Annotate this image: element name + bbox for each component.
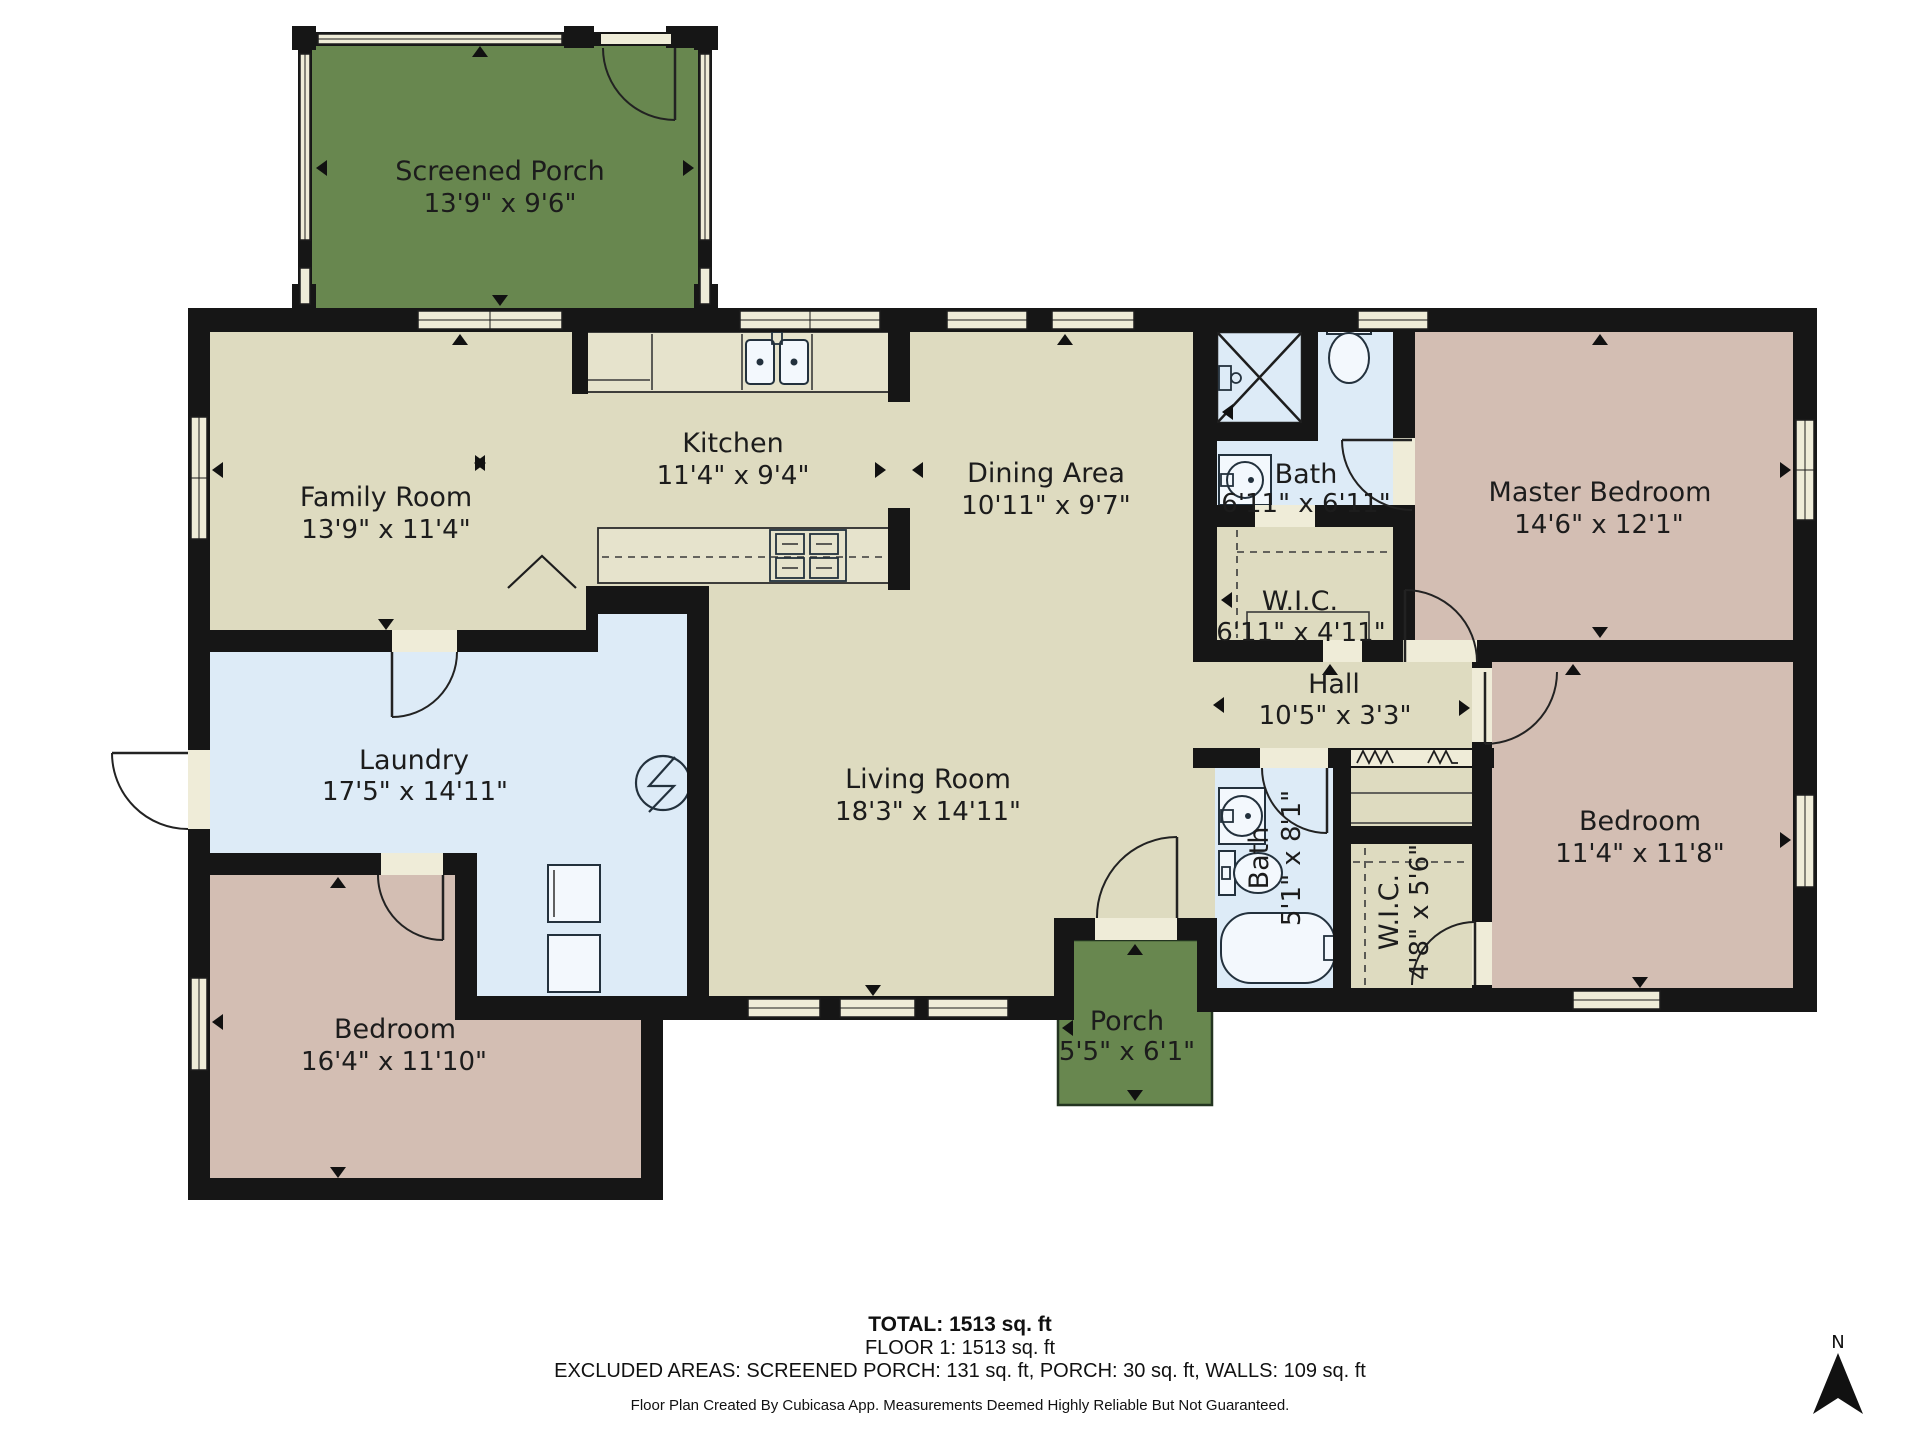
master-bedroom-label: Master Bedroom — [1489, 477, 1712, 508]
floor-area-text: FLOOR 1: 1513 sq. ft — [865, 1337, 1056, 1359]
window — [740, 311, 880, 329]
footer: TOTAL: 1513 sq. ft FLOOR 1: 1513 sq. ft … — [554, 1313, 1366, 1414]
hall-label: Hall — [1308, 669, 1360, 700]
screened-porch-label: Screened Porch — [395, 156, 604, 187]
window — [840, 999, 915, 1017]
window — [418, 311, 562, 329]
window — [1573, 991, 1660, 1009]
window — [191, 417, 207, 539]
bath-lower-dims: 5'1" x 8'1" — [1277, 790, 1307, 926]
window — [748, 999, 820, 1017]
north-arrow-icon — [1813, 1353, 1863, 1414]
wic-upper-label: W.I.C. — [1262, 586, 1338, 617]
wic-lower-label: W.I.C. — [1374, 874, 1405, 950]
floorplan-drawing: Screened Porch 13'9" x 9'6" Family Room … — [0, 0, 1920, 1440]
attribution-text: Floor Plan Created By Cubicasa App. Meas… — [631, 1397, 1290, 1414]
window — [191, 978, 207, 1070]
kitchen-peninsula — [598, 528, 890, 583]
wic-lower-dims: 4'8" x 5'6" — [1405, 844, 1435, 980]
north-label: N — [1831, 1332, 1844, 1353]
family-room-label: Family Room — [300, 482, 472, 513]
wic-upper-dims: 6'11" x 4'11" — [1216, 618, 1385, 648]
window — [1052, 311, 1134, 329]
bath-lower-label: Bath — [1244, 827, 1275, 890]
laundry-dims: 17'5" x 14'11" — [322, 777, 508, 807]
door-side-exterior — [112, 753, 188, 829]
dining-area-dims: 10'11" x 9'7" — [961, 491, 1130, 521]
floorplan-page: Screened Porch 13'9" x 9'6" Family Room … — [0, 0, 1920, 1440]
kitchen-counter-top — [580, 332, 906, 392]
kitchen-dims: 11'4" x 9'4" — [657, 461, 810, 491]
dryer-icon — [548, 935, 600, 992]
porch-screen — [700, 54, 710, 240]
master-bedroom-dims: 14'6" x 12'1" — [1514, 510, 1683, 540]
porch-screen — [300, 54, 310, 240]
bedroom-left-dims: 16'4" x 11'10" — [301, 1047, 487, 1077]
living-room-dims: 18'3" x 14'11" — [835, 797, 1021, 827]
washer-icon — [548, 865, 600, 922]
porch-screen — [300, 268, 310, 304]
screened-porch-dims: 13'9" x 9'6" — [424, 189, 577, 219]
family-room-dims: 13'9" x 11'4" — [301, 515, 470, 545]
total-area-text: TOTAL: 1513 sq. ft — [868, 1313, 1052, 1336]
hall-dims: 10'5" x 3'3" — [1259, 701, 1412, 731]
bedroom-left-label: Bedroom — [334, 1014, 456, 1045]
bedroom-right-label: Bedroom — [1579, 806, 1701, 837]
bath-upper-dims: 6'11" x 6'11" — [1221, 489, 1390, 519]
window — [1796, 420, 1814, 520]
north-compass: N — [1813, 1332, 1863, 1414]
window — [1358, 311, 1428, 329]
dining-area-label: Dining Area — [967, 458, 1125, 489]
living-room-label: Living Room — [845, 764, 1011, 795]
window — [928, 999, 1008, 1017]
porch-screen — [318, 34, 562, 44]
bedroom-right-dims: 11'4" x 11'8" — [1555, 839, 1724, 869]
kitchen-label: Kitchen — [682, 428, 783, 459]
window — [1796, 795, 1814, 887]
porch-screen — [700, 268, 710, 304]
porch-label: Porch — [1090, 1006, 1164, 1037]
excluded-areas-text: EXCLUDED AREAS: SCREENED PORCH: 131 sq. … — [554, 1360, 1366, 1382]
laundry-label: Laundry — [359, 745, 469, 776]
porch-dims: 5'5" x 6'1" — [1059, 1037, 1195, 1067]
bath-upper-label: Bath — [1275, 459, 1338, 490]
window — [947, 311, 1027, 329]
